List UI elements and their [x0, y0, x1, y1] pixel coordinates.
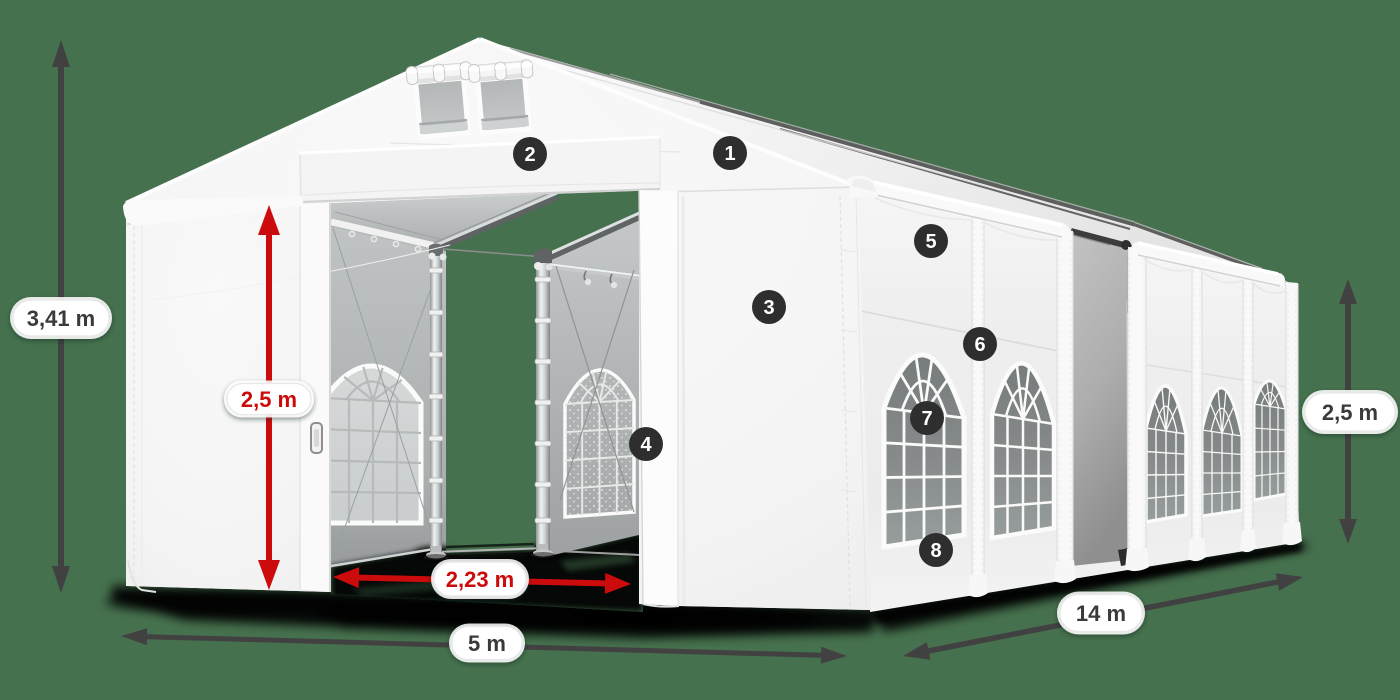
- svg-text:5 m: 5 m: [468, 631, 506, 656]
- svg-text:3,41 m: 3,41 m: [27, 306, 96, 331]
- svg-text:2,5 m: 2,5 m: [241, 387, 297, 412]
- svg-text:1: 1: [724, 143, 735, 165]
- svg-text:3: 3: [763, 297, 774, 319]
- svg-text:5: 5: [925, 231, 936, 253]
- svg-text:14 m: 14 m: [1076, 601, 1126, 626]
- svg-text:4: 4: [640, 434, 652, 456]
- svg-text:7: 7: [921, 408, 932, 430]
- svg-text:2,5 m: 2,5 m: [1322, 400, 1378, 425]
- svg-text:6: 6: [974, 334, 985, 356]
- svg-text:2,23 m: 2,23 m: [446, 567, 515, 592]
- svg-text:8: 8: [930, 540, 941, 562]
- svg-text:2: 2: [524, 144, 535, 166]
